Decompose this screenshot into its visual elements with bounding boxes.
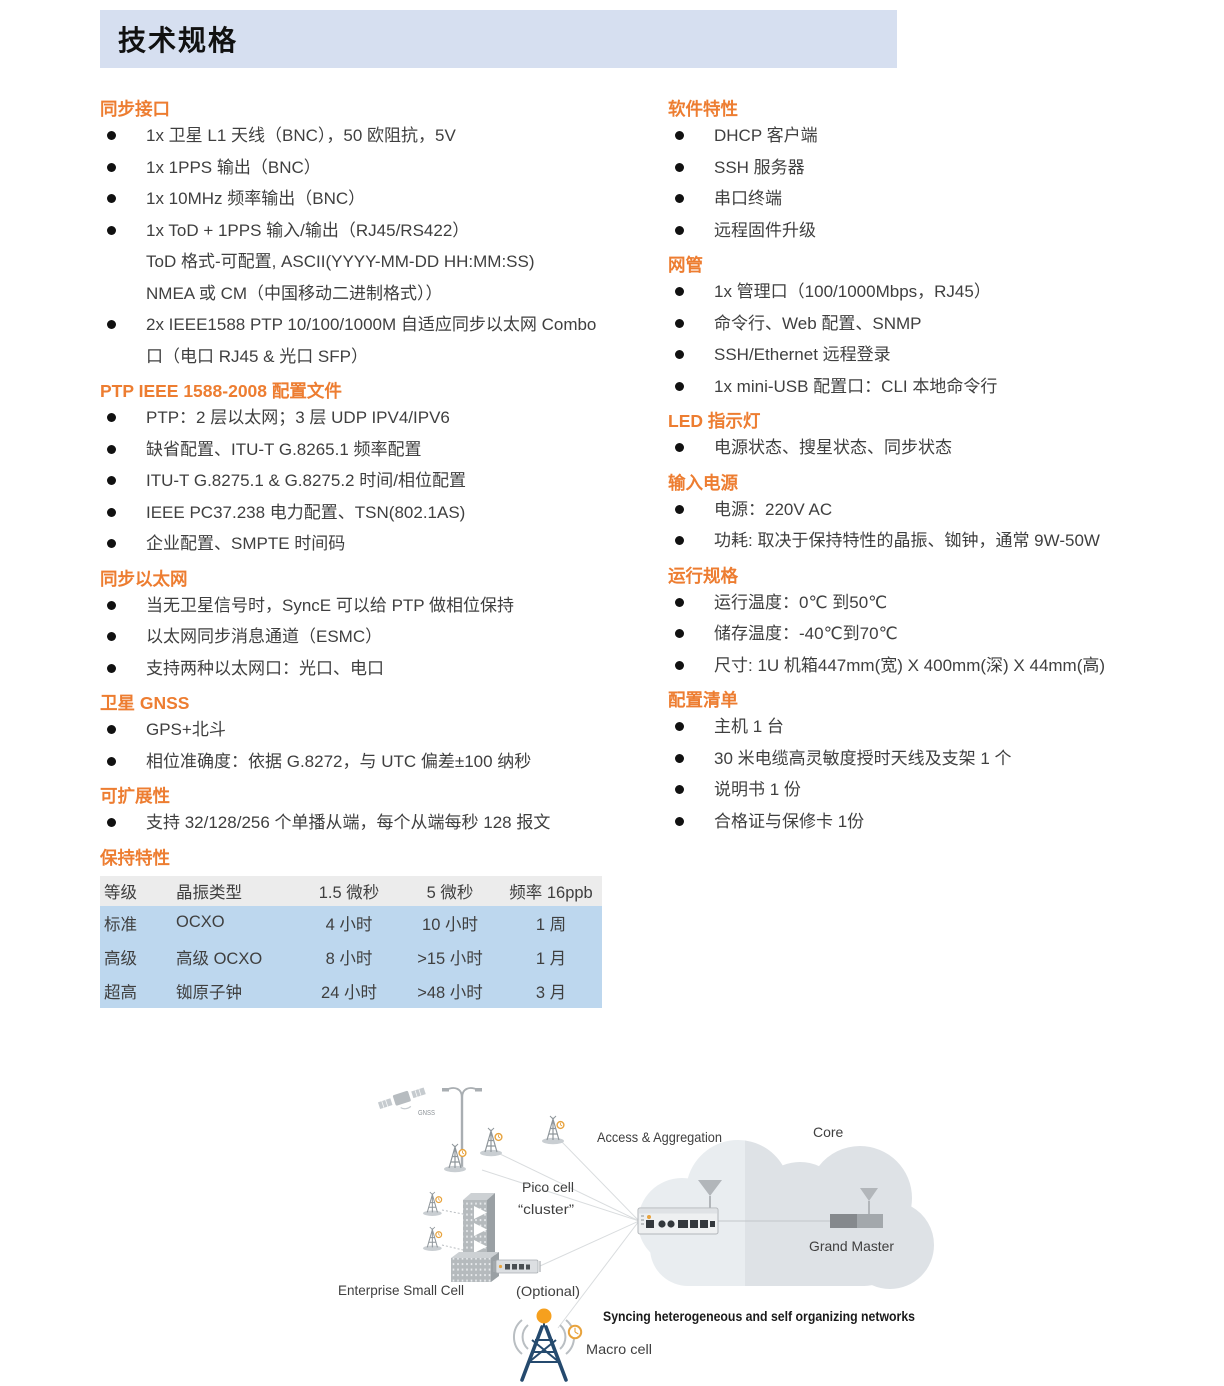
spec-item: 缺省配置、ITU-T G.8265.1 频率配置 (100, 434, 656, 466)
table-header-row: 等级晶振类型1.5 微秒5 微秒频率 16ppb (100, 876, 602, 906)
spec-item: 说明书 1 份 (668, 774, 1224, 806)
table-cell: 24 小时 (298, 974, 400, 1008)
section-heading: 输入电源 (668, 472, 1224, 494)
section-heading: 可扩展性 (100, 785, 656, 807)
spec-item: 1x mini-USB 配置口：CLI 本地命令行 (668, 371, 1224, 403)
spec-item: 支持两种以太网口：光口、电口 (100, 653, 656, 685)
section-heading: 同步接口 (100, 98, 656, 120)
network-diagram: GNSS Access & Aggregation Core Pico cell… (330, 1080, 950, 1386)
table-header: 频率 16ppb (500, 876, 602, 906)
table-cell: 10 小时 (400, 906, 500, 940)
table-header: 等级 (100, 876, 176, 906)
section-heading: PTP IEEE 1588-2008 配置文件 (100, 380, 656, 402)
spec-column-left: 同步接口1x 卫星 L1 天线（BNC），50 欧阻抗，5V1x 1PPS 输出… (100, 90, 656, 1008)
spec-item: 1x 管理口（100/1000Mbps，RJ45） (668, 276, 1224, 308)
table-cell: 4 小时 (298, 906, 400, 940)
spec-item: 1x 10MHz 频率输出（BNC） (100, 183, 656, 215)
table-cell: 3 月 (500, 974, 602, 1008)
spec-item: 30 米电缆高灵敏度授时天线及支架 1 个 (668, 743, 1224, 775)
table-cell: >15 小时 (400, 940, 500, 974)
spec-item: SSH 服务器 (668, 152, 1224, 184)
spec-item: DHCP 客户端 (668, 120, 1224, 152)
spec-item: 合格证与保修卡 1份 (668, 806, 1224, 838)
spec-item: 串口终端 (668, 183, 1224, 215)
spec-column-right: 软件特性DHCP 客户端SSH 服务器串口终端远程固件升级网管1x 管理口（10… (668, 90, 1224, 1008)
macro-cell-tower-icon (514, 1309, 581, 1381)
rack-device-icon (494, 1260, 540, 1273)
spec-item: 1x 卫星 L1 天线（BNC），50 欧阻抗，5V (100, 120, 656, 152)
gnss-label: GNSS (418, 1110, 435, 1117)
spec-item: 电源：220V AC (668, 494, 1224, 526)
enterprise-label: Enterprise Small Cell (338, 1282, 464, 1298)
spec-item: 当无卫星信号时，SyncE 可以给 PTP 做相位保持 (100, 590, 656, 622)
section-heading: 同步以太网 (100, 568, 656, 590)
table-cell: OCXO (176, 906, 298, 940)
pico-cell-tower-icon (542, 1116, 564, 1144)
section-heading: 卫星 GNSS (100, 692, 656, 714)
spec-columns: 同步接口1x 卫星 L1 天线（BNC），50 欧阻抗，5V1x 1PPS 输出… (100, 90, 1224, 1008)
grand-master-label: Grand Master (809, 1238, 894, 1254)
section-heading: 软件特性 (668, 98, 1224, 120)
spec-item: 以太网同步消息通道（ESMC） (100, 621, 656, 653)
spec-item: 相位准确度：依据 G.8272，与 UTC 偏差±100 纳秒 (100, 746, 656, 778)
spec-item-continuation: 口（电口 RJ45 & 光口 SFP） (100, 341, 656, 373)
spec-item: 功耗: 取决于保持特性的晶振、铷钟，通常 9W-50W (668, 525, 1224, 557)
table-cell: 标准 (100, 906, 176, 940)
network-diagram-svg: GNSS Access & Aggregation Core Pico cell… (330, 1080, 950, 1386)
spec-item: 电源状态、搜星状态、同步状态 (668, 432, 1224, 464)
building-icon (451, 1193, 499, 1282)
spec-item-continuation: NMEA 或 CM（中国移动二进制格式）） (100, 278, 656, 310)
table-cell: 铷原子钟 (176, 974, 298, 1008)
spec-item: 1x 1PPS 输出（BNC） (100, 152, 656, 184)
table-cell: 超高 (100, 974, 176, 1008)
table-header: 5 微秒 (400, 876, 500, 906)
table-cell: 高级 OCXO (176, 940, 298, 974)
core-label: Core (813, 1124, 844, 1140)
street-lamp-icon (442, 1088, 482, 1170)
spec-item: 运行温度：0℃ 到50℃ (668, 587, 1224, 619)
spec-item: 主机 1 台 (668, 711, 1224, 743)
spec-item: SSH/Ethernet 远程登录 (668, 339, 1224, 371)
table-row: 标准OCXO4 小时10 小时1 周 (100, 906, 602, 940)
optional-label: (Optional) (516, 1283, 580, 1299)
spec-item: GPS+北斗 (100, 714, 656, 746)
building-small-cells (423, 1192, 463, 1251)
spec-item: 企业配置、SMPTE 时间码 (100, 528, 656, 560)
spec-item: 储存温度：-40℃到70℃ (668, 618, 1224, 650)
spec-item-continuation: ToD 格式-可配置, ASCII(YYYY-MM-DD HH:MM:SS) (100, 246, 656, 278)
section-heading: LED 指示灯 (668, 410, 1224, 432)
table-header: 1.5 微秒 (298, 876, 400, 906)
spec-item: IEEE PC37.238 电力配置、TSN(802.1AS) (100, 497, 656, 529)
section-heading: 运行规格 (668, 565, 1224, 587)
table-cell: 1 月 (500, 940, 602, 974)
pico-cell-tower-icon (480, 1128, 502, 1156)
access-aggregation-label: Access & Aggregation (597, 1129, 722, 1145)
section-heading: 保持特性 (100, 847, 656, 869)
section-heading: 配置清单 (668, 689, 1224, 711)
holdover-table: 等级晶振类型1.5 微秒5 微秒频率 16ppb标准OCXO4 小时10 小时1… (100, 876, 602, 1008)
pico-cluster-label: “cluster” (518, 1201, 574, 1217)
spec-item: 1x ToD + 1PPS 输入/输出（RJ45/RS422） (100, 215, 656, 247)
table-cell: 高级 (100, 940, 176, 974)
section-heading: 网管 (668, 254, 1224, 276)
table-header: 晶振类型 (176, 876, 298, 906)
page-title-bar: 技术规格 (100, 10, 897, 68)
table-cell: 1 周 (500, 906, 602, 940)
pico-cell-label: Pico cell (522, 1179, 574, 1195)
table-cell: 8 小时 (298, 940, 400, 974)
spec-sheet-page: 技术规格 同步接口1x 卫星 L1 天线（BNC），50 欧阻抗，5V1x 1P… (0, 0, 1224, 1386)
spec-item: PTP：2 层以太网；3 层 UDP IPV4/IPV6 (100, 402, 656, 434)
spec-item: 支持 32/128/256 个单播从端，每个从端每秒 128 报文 (100, 807, 656, 839)
page-title: 技术规格 (118, 19, 238, 59)
macro-cell-label: Macro cell (586, 1341, 652, 1357)
table-row: 高级高级 OCXO8 小时>15 小时1 月 (100, 940, 602, 974)
spec-item: 命令行、Web 配置、SNMP (668, 308, 1224, 340)
spec-item: 远程固件升级 (668, 215, 1224, 247)
table-row: 超高铷原子钟24 小时>48 小时3 月 (100, 974, 602, 1008)
table-cell: >48 小时 (400, 974, 500, 1008)
spec-item: 尺寸: 1U 机箱447mm(宽) X 400mm(深) X 44mm(高) (668, 650, 1224, 682)
spec-item: 2x IEEE1588 PTP 10/100/1000M 自适应同步以太网 Co… (100, 309, 656, 341)
spec-item: ITU-T G.8275.1 & G.8275.2 时间/相位配置 (100, 465, 656, 497)
diagram-caption: Syncing heterogeneous and self organizin… (603, 1308, 915, 1324)
